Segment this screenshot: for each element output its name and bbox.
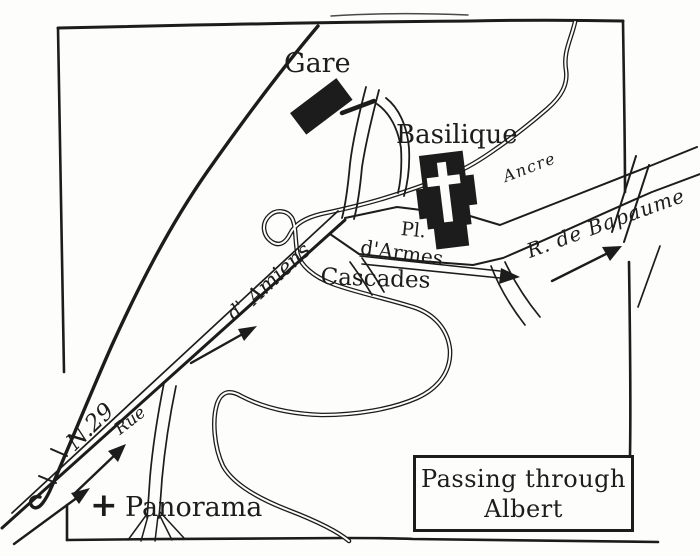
map-title-line1: Passing through [421,464,626,494]
route-arrow-bapaume-shaft [552,252,610,281]
albert-map: Gare Basilique Ancre Pl. d'Armes Cascade… [0,0,700,556]
street-fork-south-1 [505,262,540,317]
frame-right-upper [623,21,625,192]
label-place-darmes-line1: Pl. [400,220,427,241]
route-arrow-entry-head [71,488,90,504]
label-gare: Gare [284,50,351,77]
map-title-box: Passing through Albert [413,455,634,532]
label-panorama: Panorama [125,494,262,521]
label-cascades: Cascades [320,266,431,293]
frame-right-lower [629,262,630,455]
frame-top-overstroke [331,14,468,16]
panorama-cross-icon: + [90,488,118,521]
route-arrow-amiens-shaft [191,331,248,363]
station-building [290,78,353,134]
frame-top [58,20,623,28]
route-arrow-entry-shaft [14,497,78,544]
route-arrow-amiens-head [238,326,257,341]
map-title-line2: Albert [484,494,563,524]
frame-left [58,28,64,372]
station-building-rect [290,78,353,134]
street-border-south [638,246,660,307]
label-basilique: Basilique [396,122,518,148]
